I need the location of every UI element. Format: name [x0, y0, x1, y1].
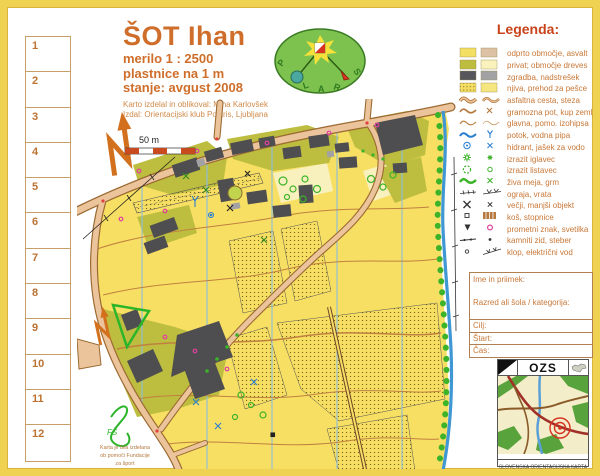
fundation-logo-icon: [111, 406, 129, 446]
ozs-header: OZS: [498, 360, 588, 376]
ozs-flag-icon: [498, 360, 518, 375]
entry-form: Ime in priimek: Razred ali šola / katego…: [469, 272, 593, 358]
fence: [451, 157, 459, 331]
fundation-logo-text: FŠ: [107, 428, 118, 437]
control-cell-8: 8: [26, 284, 70, 319]
ozs-caption: SLOVENSKA ORIENTACIJSKA KARTA: [498, 459, 588, 471]
legend-label: hidrant, jašek za vodo: [507, 143, 585, 152]
logo-letter: A: [318, 84, 325, 94]
legend-label: klop, električni vod: [507, 248, 573, 257]
club-logo-icon: P L A R S: [273, 27, 367, 95]
control-card: 1 2 3 4 5 6 7 8 9 10 11 12: [25, 36, 71, 462]
legend-label: ograja, vrata: [507, 190, 551, 199]
finish-row: Cilj:: [470, 320, 592, 333]
club-logo: P L A R S: [273, 27, 367, 95]
control-cell-7: 7: [26, 249, 70, 284]
entry-form-top: Ime in priimek: Razred ali šola / katego…: [470, 273, 592, 320]
legend-label: potok, vodna pipa: [507, 131, 570, 140]
course-map: 50 m FŠ Karta je bila izdelana ob pomoči…: [77, 99, 459, 471]
legend-label: koš, stopnice: [507, 213, 554, 222]
north-arrow-icon: [106, 111, 137, 176]
control-cell-3: 3: [26, 108, 70, 143]
control-cell-10: 10: [26, 355, 70, 390]
control-cell-11: 11: [26, 390, 70, 425]
legend-label: gramozna pot, kup zemlje: [507, 108, 599, 117]
control-cell-2: 2: [26, 72, 70, 107]
legend: odprto območje, asvalt privat; območje d…: [459, 48, 600, 258]
scale-bar-label: 50 m: [139, 135, 159, 145]
legend-label: asfaltna cesta, steza: [507, 96, 580, 105]
slovenia-outline-icon: [568, 360, 588, 375]
time-row: Čas:: [470, 345, 592, 358]
ozs-title: OZS: [518, 361, 568, 375]
legend-row-bench: klop, električni vod: [459, 247, 600, 259]
bench-symbol-icon: [459, 244, 507, 262]
round-feature: [228, 186, 242, 200]
legend-label: odprto območje, asvalt: [507, 49, 588, 58]
control-cell-1: 1: [26, 37, 70, 72]
category-label: Razred ali šola / kategorija:: [473, 298, 592, 307]
funding-line: ob pomoči Fundacije: [100, 453, 150, 459]
legend-label: izrazit listavec: [507, 166, 557, 175]
legend-label: izrazit iglavec: [507, 155, 555, 164]
legend-label: večji, manjši objekt: [507, 201, 574, 210]
legend-label: privat; območje dreves: [507, 61, 587, 70]
legend-label: prometni znak, svetilka: [507, 225, 588, 234]
legend-label: njiva, prehod za pešce: [507, 84, 587, 93]
ozs-locator-map: [498, 376, 588, 454]
ozs-caption-text: SLOVENSKA ORIENTACIJSKA KARTA: [499, 464, 588, 470]
ozs-box: OZS SLOVENSKA ORIENTACIJSKA KARTA: [497, 359, 589, 467]
name-label: Ime in priimek:: [473, 275, 592, 284]
funding-line: za šport: [115, 461, 135, 467]
legend-title: Legenda:: [457, 21, 599, 37]
scale-bar: 50 m: [125, 135, 195, 154]
legend-label: zgradba, nadstrešek: [507, 73, 580, 82]
control-cell-4: 4: [26, 143, 70, 178]
funding-line: Karta je bila izdelana: [100, 445, 150, 451]
start-row: Štart:: [470, 333, 592, 346]
legend-label: živa meja, grm: [507, 178, 559, 187]
map-sheet: 1 2 3 4 5 6 7 8 9 10 11 12 ŠOT Ihan meri…: [0, 0, 600, 476]
legend-label: glavna, pomo. izohipsa: [507, 119, 589, 128]
control-cell-12: 12: [26, 425, 70, 460]
control-cell-5: 5: [26, 178, 70, 213]
control-cell-9: 9: [26, 319, 70, 354]
legend-label: kamniti zid, steber: [507, 236, 571, 245]
control-cell-6: 6: [26, 213, 70, 248]
